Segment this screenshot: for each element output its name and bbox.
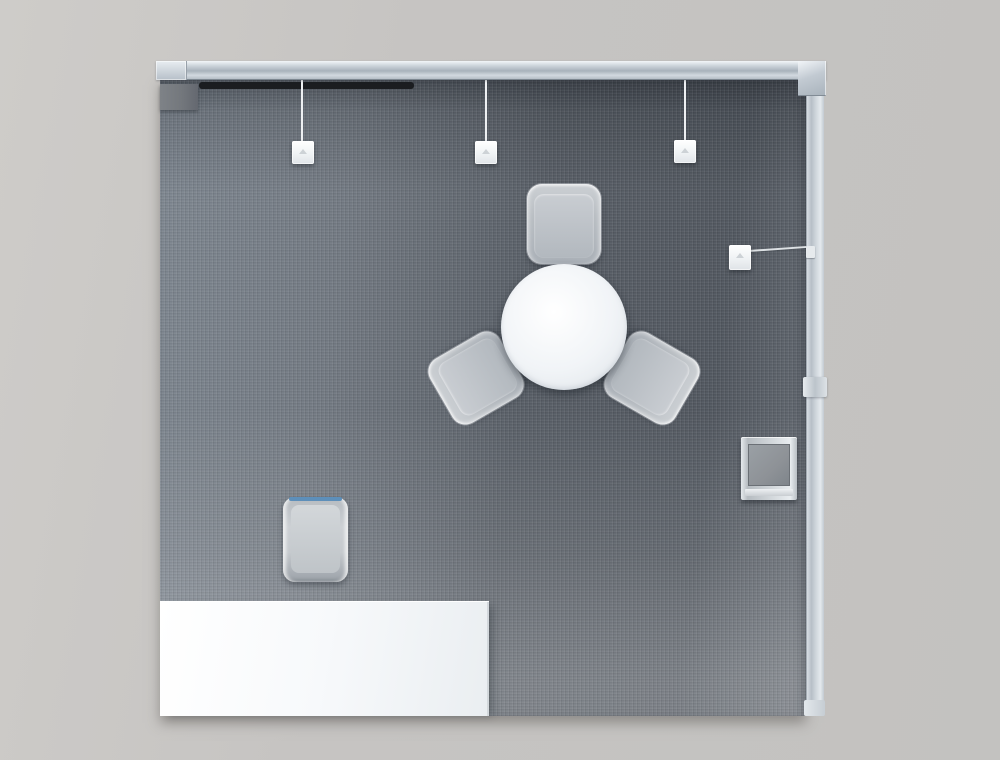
pendant-joint — [681, 148, 689, 153]
reception-counter — [160, 601, 489, 716]
pendant-cord — [684, 74, 686, 141]
stool-seat — [291, 505, 340, 573]
pendant-cord — [485, 76, 487, 142]
pendant-joint — [482, 149, 490, 154]
pendant-cord — [301, 76, 303, 142]
truss-corner-connector — [798, 61, 826, 96]
kiosk-screen — [748, 444, 790, 486]
kiosk-base-strip — [745, 489, 793, 496]
spotlight-joint — [736, 253, 744, 258]
booth-top-view-render — [0, 0, 1000, 760]
spotlight-wall-mount — [806, 246, 815, 258]
monitor-kiosk — [741, 437, 797, 500]
light-track — [199, 82, 414, 89]
right-wall-panel — [806, 80, 824, 716]
wall-endcap — [804, 700, 825, 716]
stool — [283, 497, 348, 582]
storage-cabinet — [160, 84, 198, 110]
pendant-joint — [299, 149, 307, 154]
stool-back-rail — [289, 497, 342, 501]
chair-seat — [534, 194, 594, 258]
pendant-light — [475, 141, 497, 164]
arm-spotlight — [729, 245, 751, 270]
round-table — [501, 264, 627, 390]
truss-beam — [156, 61, 826, 80]
chair-north — [527, 184, 601, 264]
pendant-light — [674, 140, 696, 163]
wall-joint — [803, 377, 827, 397]
pendant-light — [292, 141, 314, 164]
truss-left-cap — [156, 61, 187, 80]
